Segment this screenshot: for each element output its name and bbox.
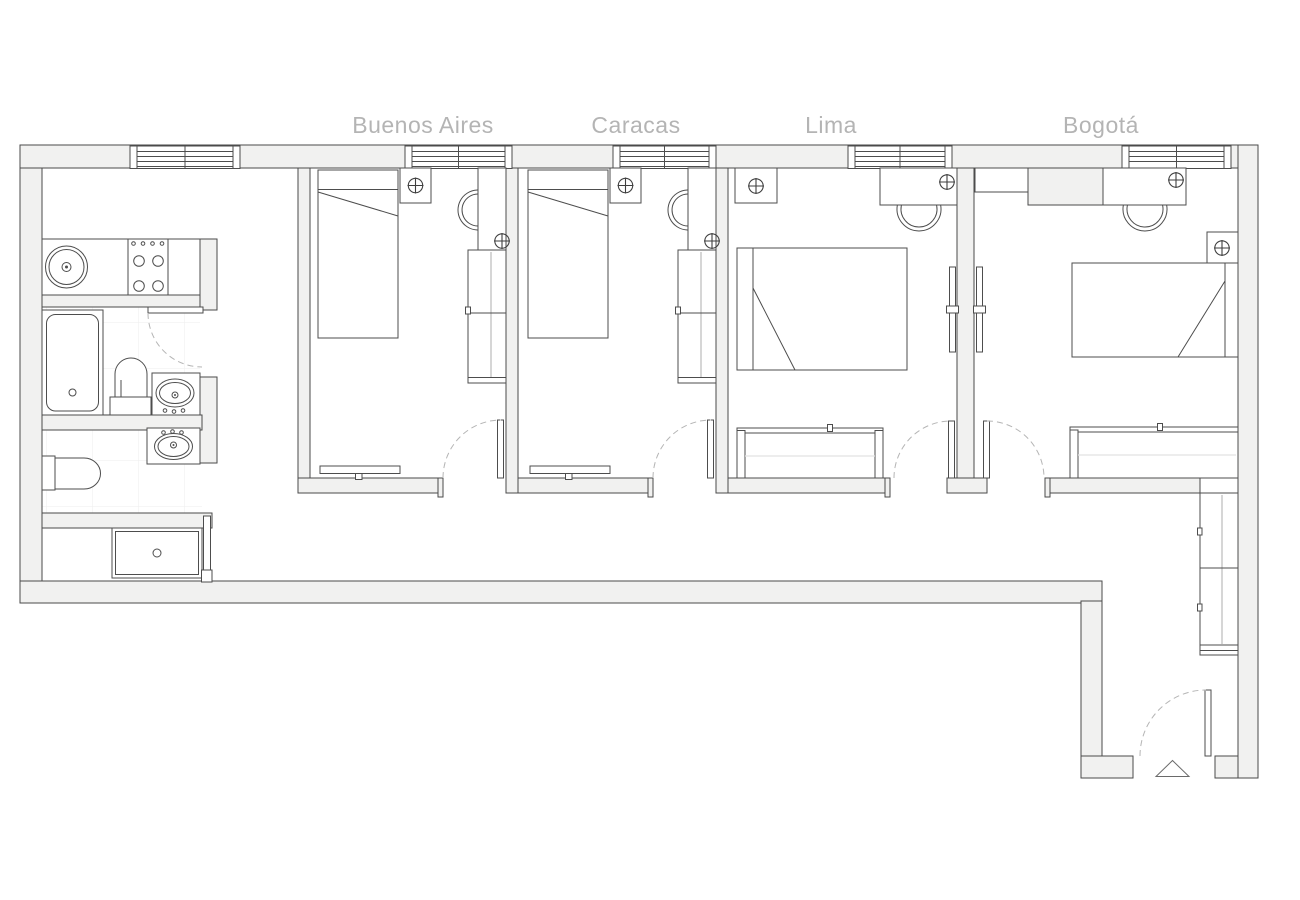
room-label-caracas: Caracas xyxy=(591,112,680,138)
bathtub-symbol xyxy=(42,310,103,415)
room-buenos-aires xyxy=(318,168,510,480)
entrance-marker-icon xyxy=(1156,761,1189,777)
sideboard-symbol xyxy=(737,425,883,479)
washbasin-symbol-bath2 xyxy=(147,428,200,464)
room-caracas xyxy=(528,168,720,480)
door-lima xyxy=(894,421,955,478)
shower-tray-symbol xyxy=(112,528,202,578)
room-lima xyxy=(735,168,959,478)
door-buenos-aires xyxy=(443,420,504,478)
floor-plan-canvas: Buenos Aires Caracas Lima Bogotá xyxy=(0,0,1300,900)
double-bed-symbol xyxy=(737,248,907,370)
hallway-cabinet-symbol xyxy=(1198,493,1239,655)
room-label-buenos-aires: Buenos Aires xyxy=(352,112,494,138)
sliding-door-symbol xyxy=(202,516,213,582)
door-caracas xyxy=(653,420,714,478)
radiator-symbol xyxy=(530,466,610,480)
window-buenos-aires xyxy=(405,146,512,169)
single-bed-symbol xyxy=(1072,263,1238,357)
room-label-bogota: Bogotá xyxy=(1063,112,1139,138)
radiator-symbol xyxy=(320,466,400,480)
toilet-symbol-bath2 xyxy=(42,456,101,490)
wardrobe-symbol xyxy=(466,250,507,383)
single-bed-symbol xyxy=(318,170,398,338)
sideboard-symbol xyxy=(1070,424,1238,479)
window-kitchen xyxy=(130,146,240,169)
entrance-door xyxy=(1140,690,1211,756)
wardrobe-symbol xyxy=(676,250,717,383)
room-bogota xyxy=(974,168,1239,478)
window-caracas xyxy=(613,146,716,169)
desk-symbol xyxy=(880,168,957,205)
window-lima xyxy=(848,146,952,169)
radiator-symbol xyxy=(974,267,986,352)
closet-niche xyxy=(975,168,1028,192)
room-label-lima: Lima xyxy=(805,112,857,138)
window-bogota xyxy=(1122,146,1231,169)
door-bogota xyxy=(984,421,1045,478)
washbasin-symbol-bath1 xyxy=(152,373,200,415)
single-bed-symbol xyxy=(528,170,608,338)
interior-walls xyxy=(42,168,1200,528)
